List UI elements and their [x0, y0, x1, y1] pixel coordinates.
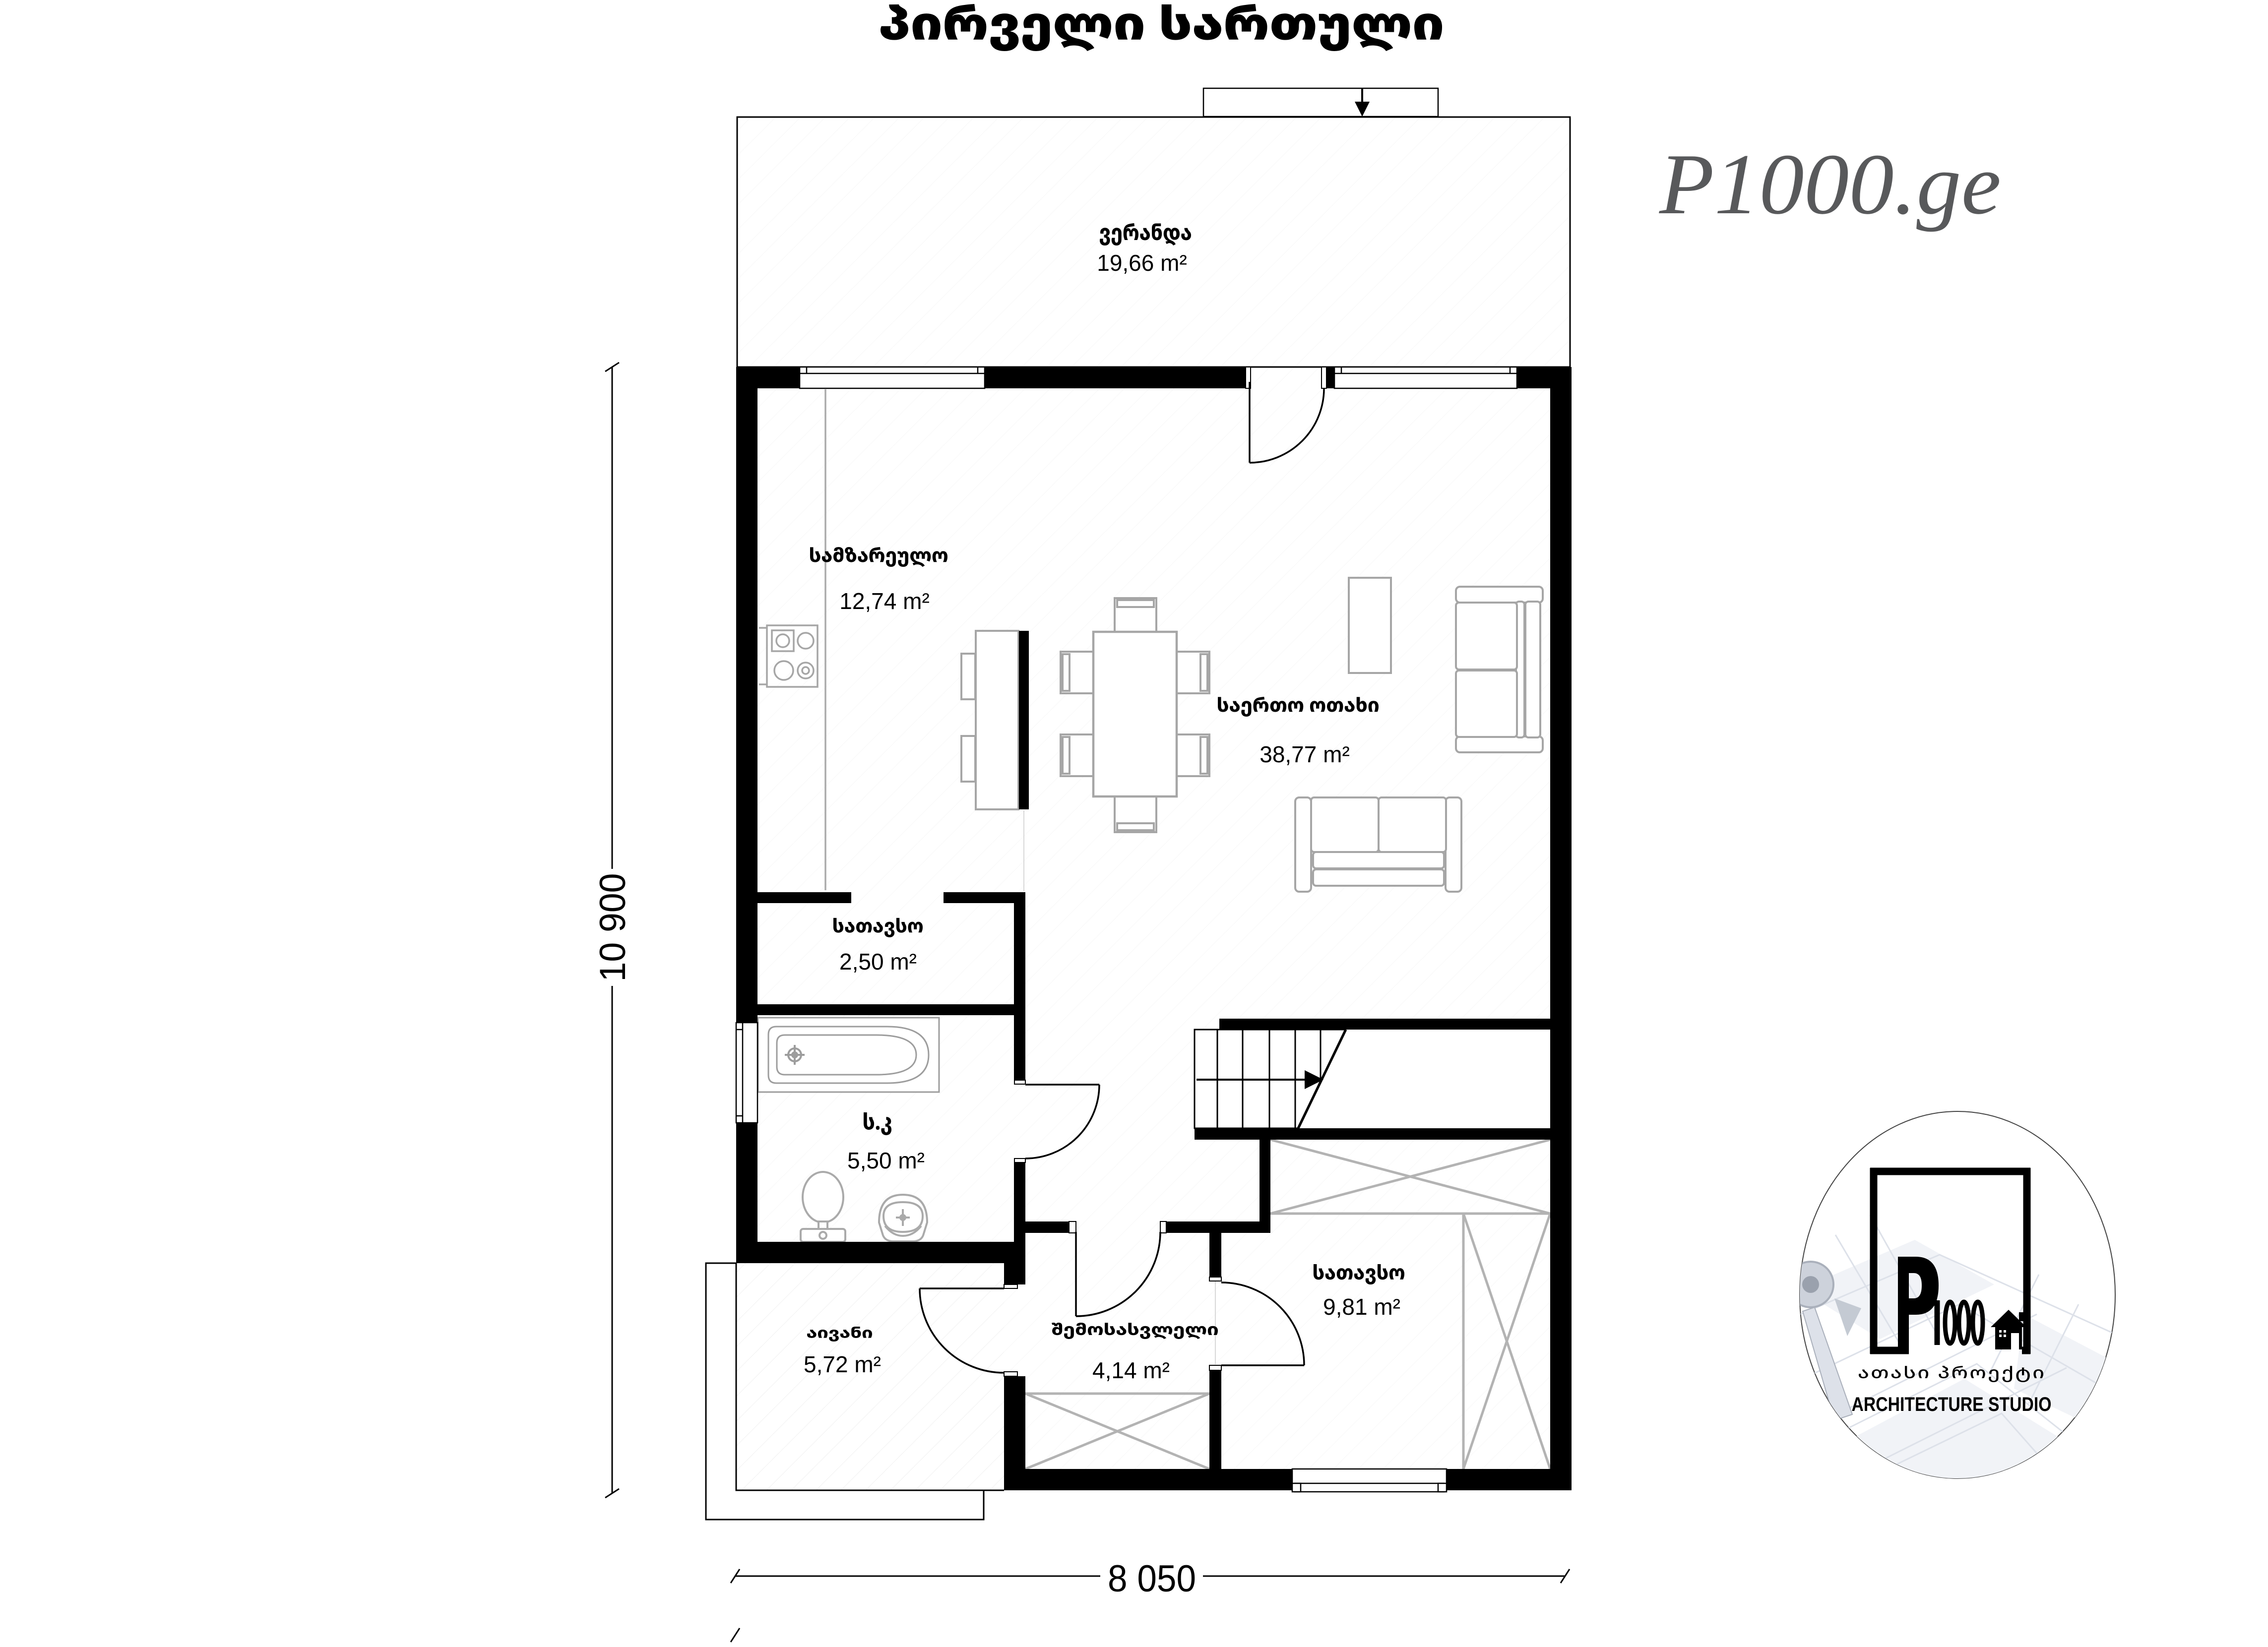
svg-text:19,66 m²: 19,66 m² — [1097, 250, 1187, 276]
svg-text:8 050: 8 050 — [1108, 1558, 1196, 1600]
svg-text:38,77 m²: 38,77 m² — [1260, 741, 1350, 767]
svg-text:12,74 m²: 12,74 m² — [839, 588, 930, 614]
svg-text:2,50 m²: 2,50 m² — [839, 949, 917, 975]
svg-text:9,81 m²: 9,81 m² — [1323, 1294, 1400, 1320]
svg-text:5,50 m²: 5,50 m² — [847, 1148, 925, 1173]
svg-text:5,72 m²: 5,72 m² — [804, 1351, 881, 1377]
svg-text:P1000.ge: P1000.ge — [1659, 136, 2001, 232]
svg-text:4,14 m²: 4,14 m² — [1092, 1357, 1170, 1383]
svg-text:ARCHITECTURE STUDIO: ARCHITECTURE STUDIO — [1852, 1394, 2052, 1415]
svg-text:10 900: 10 900 — [593, 873, 633, 982]
